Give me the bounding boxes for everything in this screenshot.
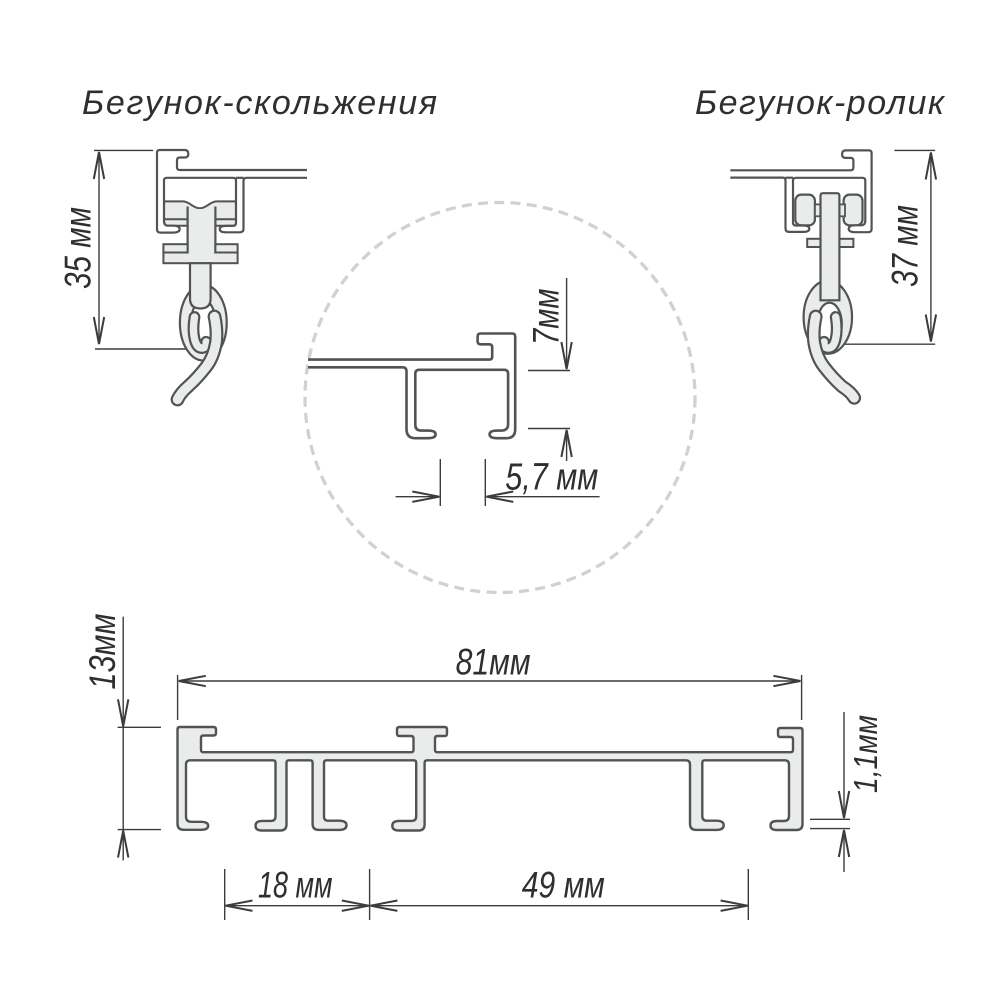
svg-text:37 мм: 37 мм <box>885 205 926 287</box>
svg-text:35 мм: 35 мм <box>58 207 99 289</box>
svg-text:1,1мм: 1,1мм <box>847 715 884 793</box>
svg-text:81мм: 81мм <box>456 642 531 683</box>
svg-text:7мм: 7мм <box>526 289 567 346</box>
svg-text:Бегунок-скольжения: Бегунок-скольжения <box>82 84 439 122</box>
svg-text:5,7 мм: 5,7 мм <box>505 457 598 499</box>
svg-text:18 мм: 18 мм <box>258 865 333 906</box>
svg-text:Бегунок-ролик: Бегунок-ролик <box>695 84 946 122</box>
svg-text:13мм: 13мм <box>82 614 123 690</box>
svg-text:49 мм: 49 мм <box>522 865 605 906</box>
